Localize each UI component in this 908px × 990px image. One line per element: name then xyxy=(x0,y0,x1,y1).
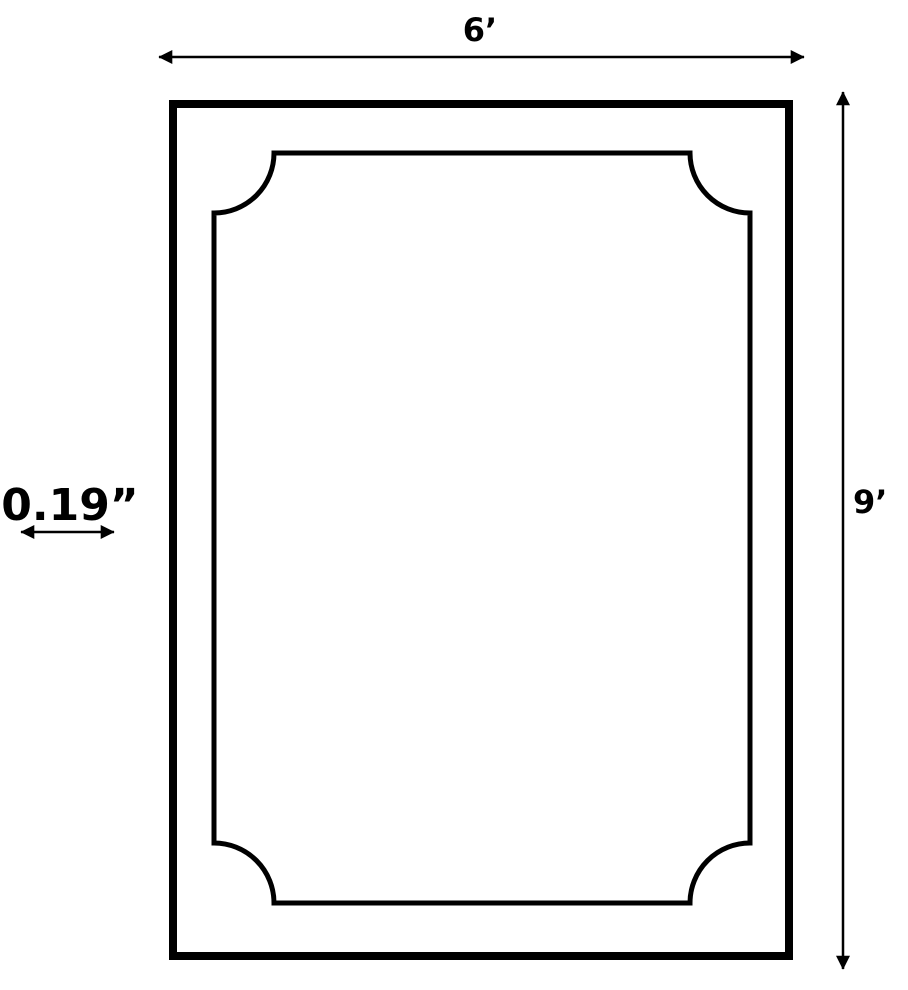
thickness-dimension-label: 0.19” xyxy=(1,480,138,531)
dimension-diagram: 6’ 9’ 0.19” xyxy=(0,0,908,990)
width-dimension-label: 6’ xyxy=(463,11,497,49)
frame-dimension-drawing: 6’ 9’ 0.19” xyxy=(0,0,908,990)
height-dimension-label: 9’ xyxy=(853,483,887,521)
